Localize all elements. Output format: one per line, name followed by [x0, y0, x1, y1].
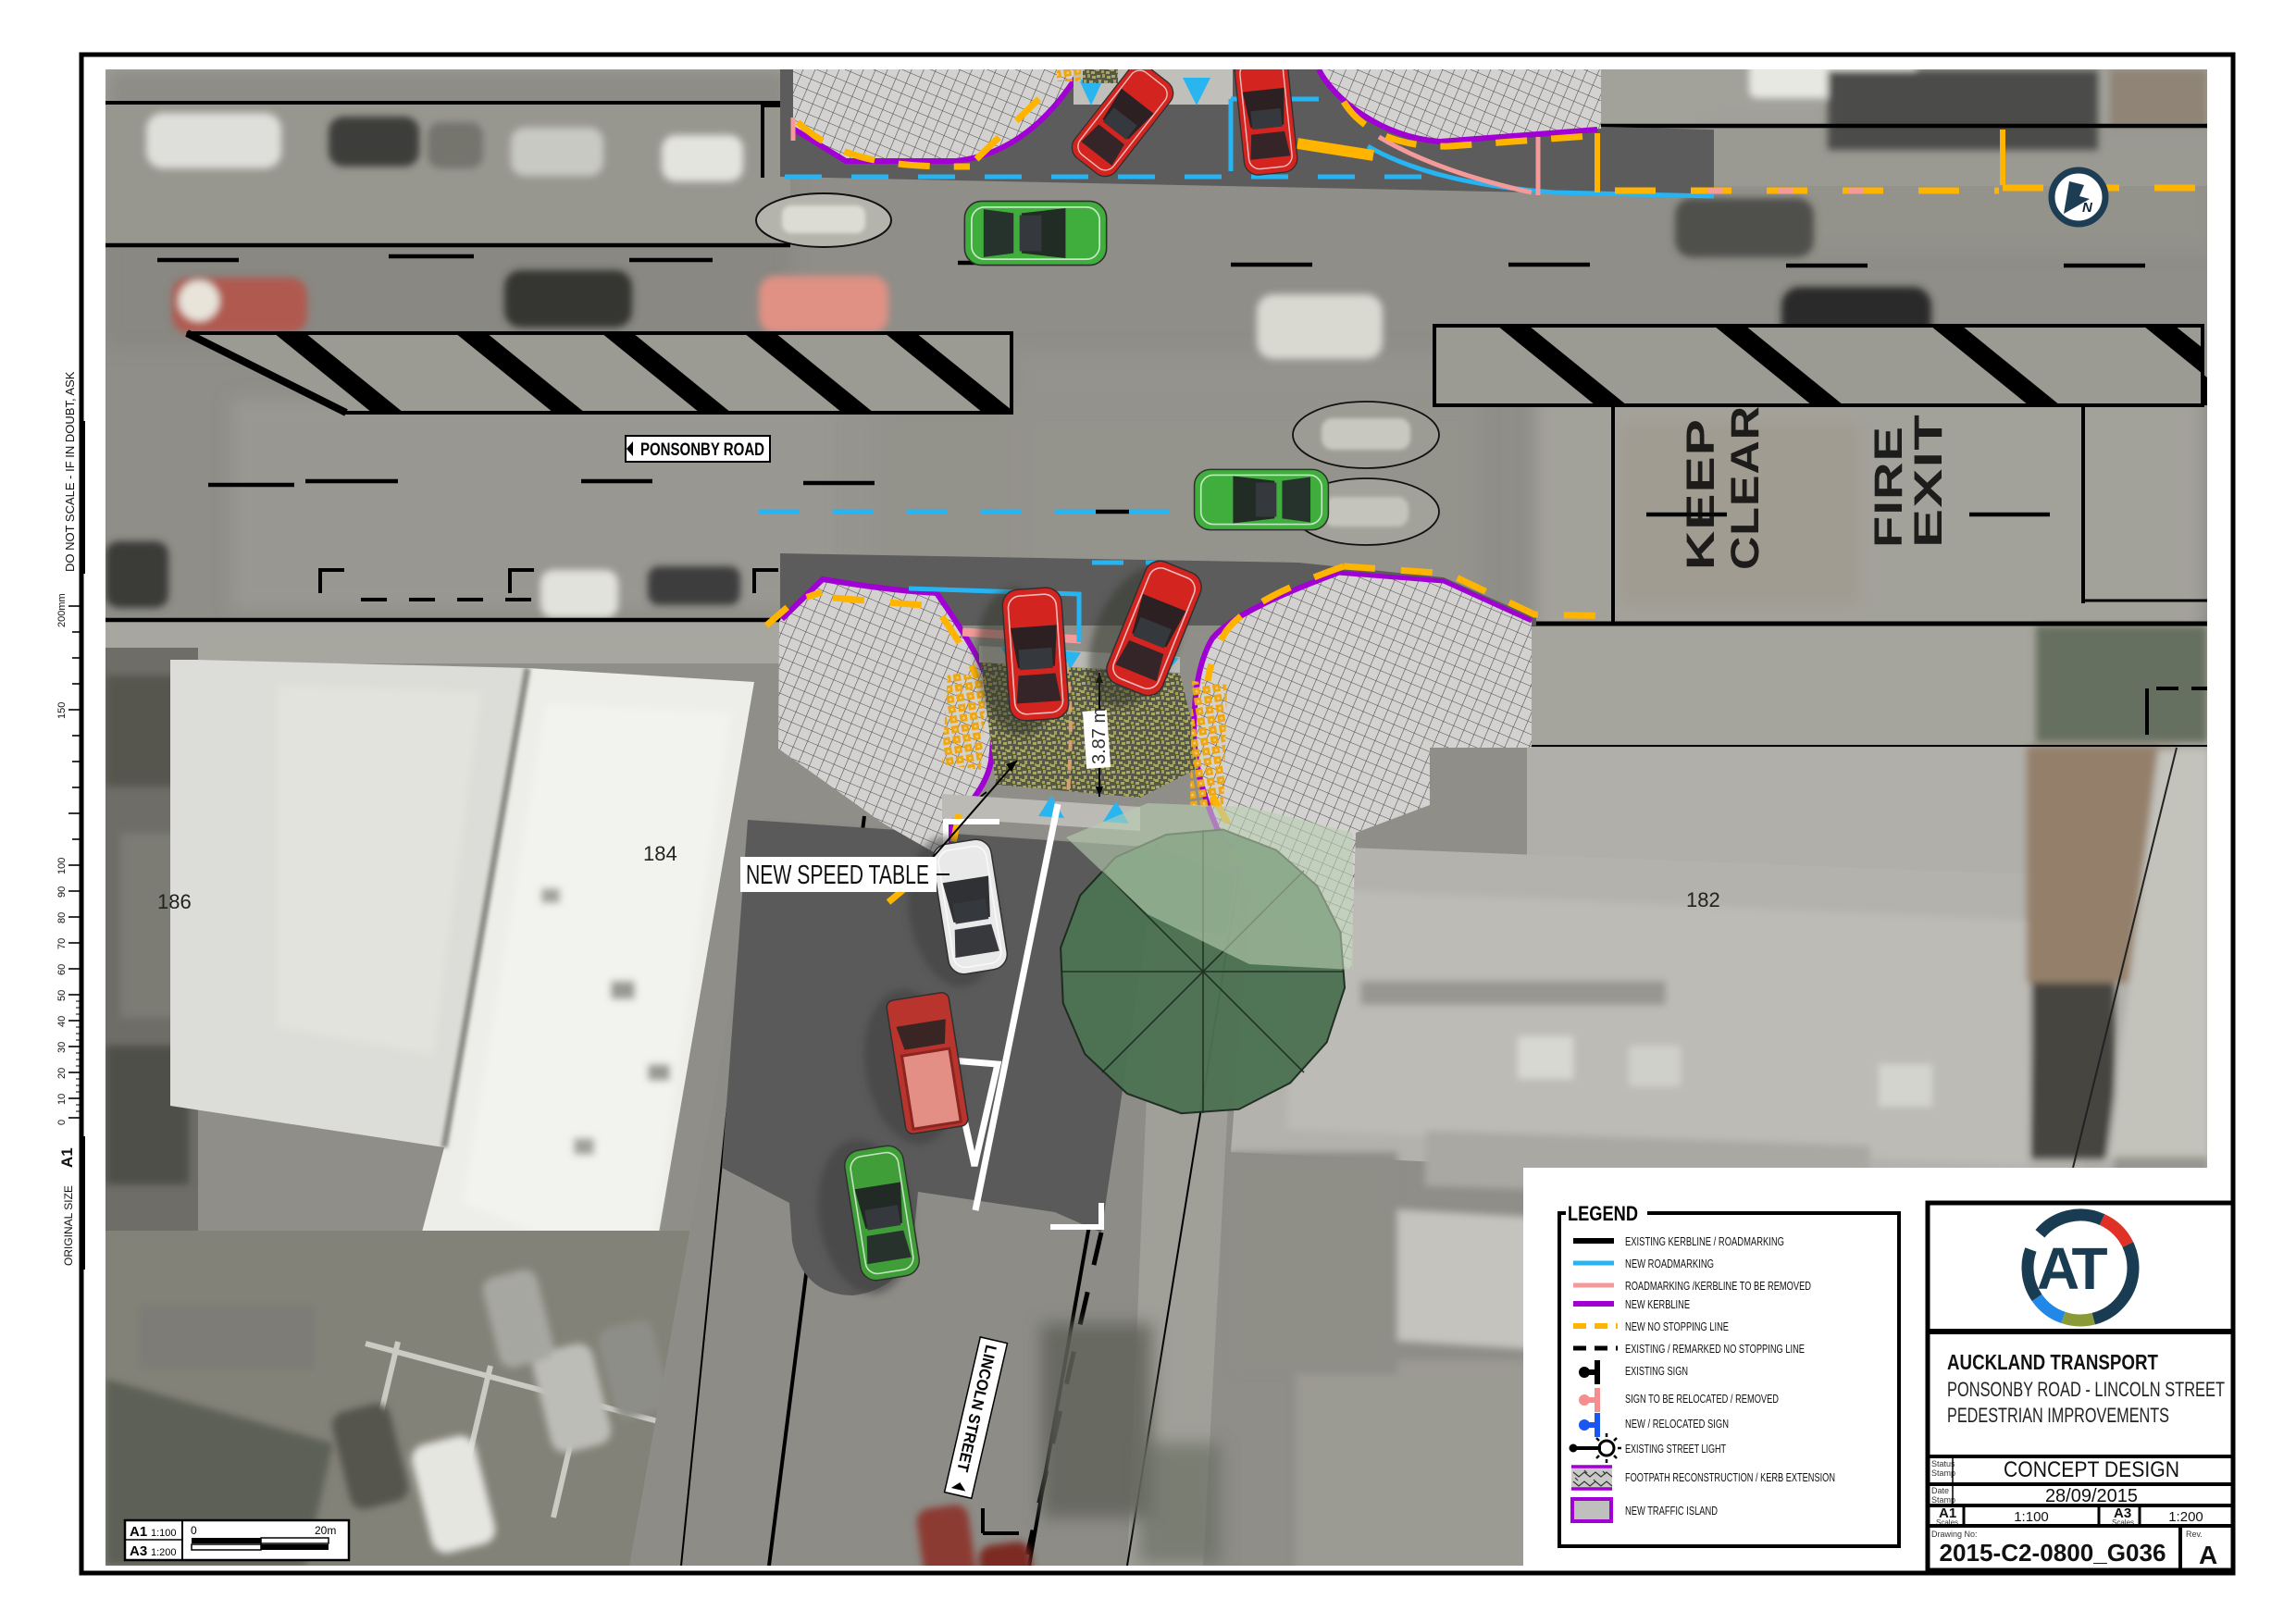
svg-text:N: N [2082, 200, 2093, 216]
svg-text:CLEAR: CLEAR [1723, 405, 1768, 570]
svg-text:100: 100 [56, 858, 68, 874]
svg-text:3.87 m: 3.87 m [1089, 708, 1110, 764]
svg-text:Stamp: Stamp [1931, 1468, 1955, 1478]
svg-text:1:200: 1:200 [2168, 1509, 2203, 1525]
svg-text:186: 186 [157, 890, 192, 913]
svg-text:PONSONBY ROAD: PONSONBY ROAD [640, 440, 764, 460]
svg-text:182: 182 [1686, 888, 1720, 911]
svg-text:70: 70 [56, 938, 68, 949]
svg-text:EXISTING SIGN: EXISTING SIGN [1625, 1365, 1688, 1378]
svg-text:20: 20 [56, 1068, 68, 1079]
svg-text:20m: 20m [315, 1524, 336, 1537]
svg-text:Drawing No:: Drawing No: [1931, 1530, 1978, 1539]
svg-text:80: 80 [56, 912, 68, 923]
svg-text:1:200: 1:200 [151, 1547, 177, 1558]
svg-text:AT: AT [2037, 1235, 2107, 1302]
svg-text:PEDESTRIAN IMPROVEMENTS: PEDESTRIAN IMPROVEMENTS [1947, 1404, 2169, 1427]
svg-text:DO NOT SCALE - IF IN DOUBT, AS: DO NOT SCALE - IF IN DOUBT, ASK [63, 371, 77, 572]
svg-text:LEGEND: LEGEND [1568, 1202, 1638, 1225]
svg-text:EXISTING KERBLINE / ROADMARKIN: EXISTING KERBLINE / ROADMARKING [1625, 1235, 1784, 1248]
svg-text:EXISTING / REMARKED NO STOPPIN: EXISTING / REMARKED NO STOPPING LINE [1625, 1343, 1805, 1356]
svg-text:150: 150 [56, 702, 68, 719]
svg-text:184: 184 [643, 842, 677, 865]
svg-text:1:100: 1:100 [151, 1528, 177, 1539]
svg-text:KEEP: KEEP [1679, 418, 1723, 570]
svg-text:28/09/2015: 28/09/2015 [2045, 1486, 2138, 1506]
svg-text:NEW SPEED TABLE: NEW SPEED TABLE [746, 861, 929, 890]
svg-text:0: 0 [191, 1524, 197, 1537]
svg-text:NEW KERBLINE: NEW KERBLINE [1625, 1298, 1690, 1311]
svg-text:SIGN TO BE RELOCATED / REMOVED: SIGN TO BE RELOCATED / REMOVED [1625, 1393, 1779, 1406]
svg-text:AUCKLAND TRANSPORT: AUCKLAND TRANSPORT [1947, 1350, 2158, 1374]
svg-text:NEW NO STOPPING LINE: NEW NO STOPPING LINE [1625, 1320, 1729, 1333]
svg-text:A: A [2199, 1541, 2217, 1569]
svg-text:40: 40 [56, 1016, 68, 1027]
svg-text:10: 10 [56, 1094, 68, 1105]
svg-text:EXISTING STREET LIGHT: EXISTING STREET LIGHT [1625, 1443, 1726, 1456]
svg-text:ORIGINAL SIZE: ORIGINAL SIZE [62, 1185, 75, 1266]
svg-text:EXIT: EXIT [1906, 414, 1951, 548]
svg-text:CONCEPT DESIGN: CONCEPT DESIGN [2004, 1457, 2179, 1482]
svg-text:ROADMARKING /KERBLINE TO BE RE: ROADMARKING /KERBLINE TO BE REMOVED [1625, 1280, 1811, 1293]
svg-text:50: 50 [56, 990, 68, 1001]
svg-text:A1: A1 [58, 1147, 76, 1168]
svg-text:NEW / RELOCATED SIGN: NEW / RELOCATED SIGN [1625, 1418, 1729, 1431]
svg-text:A1: A1 [130, 1524, 147, 1540]
svg-text:NEW TRAFFIC ISLAND: NEW TRAFFIC ISLAND [1625, 1505, 1718, 1518]
svg-text:30: 30 [56, 1042, 68, 1053]
svg-text:PONSONBY ROAD - LINCOLN STREET: PONSONBY ROAD - LINCOLN STREET [1947, 1378, 2225, 1401]
svg-text:60: 60 [56, 964, 68, 975]
svg-text:2015-C2-0800_G036: 2015-C2-0800_G036 [1940, 1539, 2166, 1567]
svg-text:0: 0 [56, 1120, 68, 1125]
svg-text:NEW ROADMARKING: NEW ROADMARKING [1625, 1258, 1714, 1270]
svg-text:Rev.: Rev. [2186, 1530, 2203, 1539]
svg-text:200mm: 200mm [56, 593, 68, 627]
svg-text:Stamp: Stamp [1931, 1495, 1955, 1505]
svg-text:FIRE: FIRE [1867, 426, 1911, 548]
svg-text:FOOTPATH RECONSTRUCTION / KERB: FOOTPATH RECONSTRUCTION / KERB EXTENSION [1625, 1471, 1835, 1484]
svg-text:Status: Status [1931, 1459, 1955, 1468]
svg-text:1:100: 1:100 [2014, 1509, 2049, 1525]
svg-text:A3: A3 [130, 1543, 147, 1559]
svg-text:90: 90 [56, 886, 68, 898]
svg-text:Date: Date [1931, 1486, 1949, 1495]
